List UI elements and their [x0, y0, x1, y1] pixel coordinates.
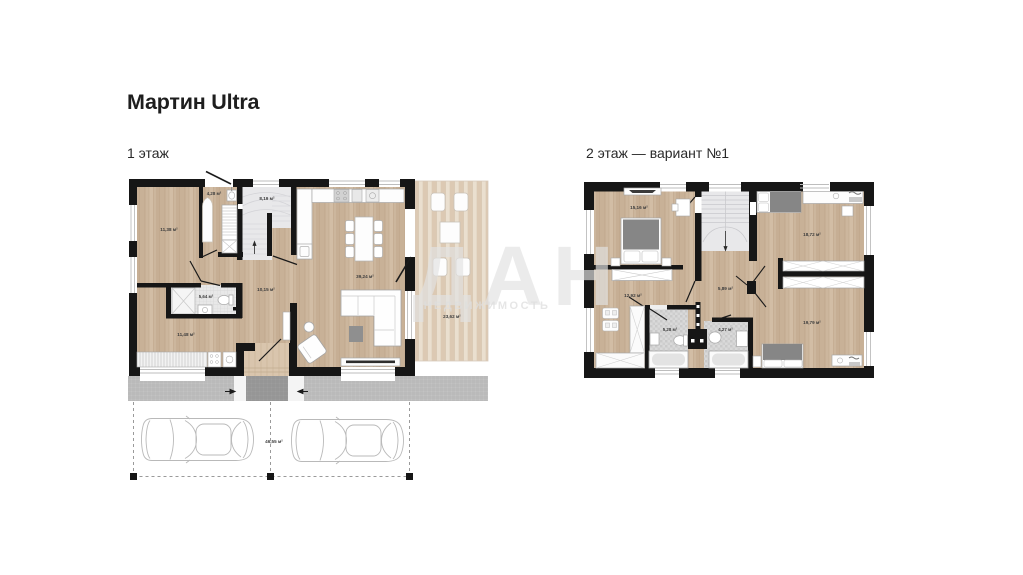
svg-text:10,15 м²: 10,15 м² — [257, 287, 275, 292]
svg-text:11,38 м²: 11,38 м² — [160, 227, 178, 232]
svg-text:1 этаж: 1 этаж — [127, 145, 170, 161]
svg-text:5,28 м²: 5,28 м² — [663, 327, 678, 332]
svg-text:39,24 м²: 39,24 м² — [356, 274, 374, 279]
svg-text:15,16 м²: 15,16 м² — [630, 205, 648, 210]
svg-text:46,55 м²: 46,55 м² — [265, 439, 283, 444]
svg-text:Мартин Ultra: Мартин Ultra — [127, 90, 261, 114]
svg-text:11,48 м²: 11,48 м² — [177, 332, 195, 337]
svg-text:4,27 м²: 4,27 м² — [718, 327, 733, 332]
svg-text:8,19 м²: 8,19 м² — [259, 196, 275, 201]
svg-text:2 этаж — вариант №1: 2 этаж — вариант №1 — [586, 145, 729, 161]
svg-text:5,64 м²: 5,64 м² — [199, 294, 214, 299]
svg-text:12,92 м²: 12,92 м² — [624, 293, 642, 298]
svg-text:5,89 м²: 5,89 м² — [718, 286, 734, 291]
svg-text:18,72 м²: 18,72 м² — [803, 232, 821, 237]
svg-text:НЕДВИЖИМОСТЬ: НЕДВИЖИМОСТЬ — [424, 300, 551, 312]
svg-text:19,79 м²: 19,79 м² — [803, 320, 821, 325]
svg-text:4,28 м²: 4,28 м² — [207, 191, 222, 196]
